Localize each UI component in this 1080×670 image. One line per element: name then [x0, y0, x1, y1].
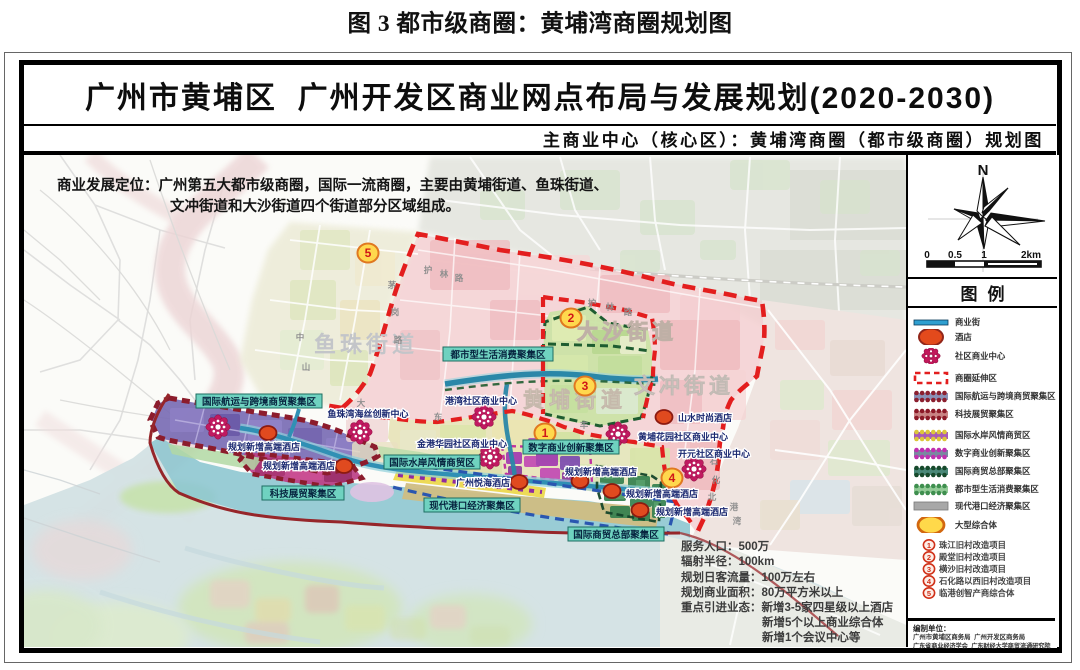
svg-text:规划新增高端酒店: 规划新增高端酒店: [228, 441, 300, 452]
svg-text:茅: 茅: [387, 280, 397, 290]
svg-text:0: 0: [924, 250, 930, 261]
svg-text:东: 东: [434, 412, 443, 422]
svg-text:北: 北: [708, 492, 717, 502]
svg-text:港: 港: [730, 502, 739, 512]
svg-text:新增1个会议中心等: 新增1个会议中心等: [762, 630, 861, 644]
svg-text:规划新增高端酒店: 规划新增高端酒店: [656, 506, 728, 517]
svg-text:岗: 岗: [391, 307, 400, 317]
svg-text:规划新增高端酒店: 规划新增高端酒店: [626, 488, 698, 499]
svg-text:1: 1: [981, 250, 987, 261]
svg-text:鱼珠湾海丝创新中心: 鱼珠湾海丝创新中心: [327, 408, 408, 419]
svg-text:现代港口经济聚集区: 现代港口经济聚集区: [429, 500, 515, 512]
svg-text:丰: 丰: [580, 420, 589, 430]
svg-text:国际航运与跨境商贸聚集区: 国际航运与跨境商贸聚集区: [202, 396, 317, 408]
svg-text:化: 化: [712, 475, 721, 485]
svg-text:开元社区商业中心: 开元社区商业中心: [678, 448, 750, 459]
svg-text:重点引进业态：新增3-5家四星级以上酒店: 重点引进业态：新增3-5家四星级以上酒店: [681, 600, 894, 614]
svg-text:辐射半径：100km: 辐射半径：100km: [681, 554, 774, 568]
svg-text:规划日客流量：100万左右: 规划日客流量：100万左右: [681, 570, 816, 584]
svg-text:广州悦海酒店: 广州悦海酒店: [456, 477, 510, 488]
svg-text:湾: 湾: [733, 516, 742, 526]
svg-text:服务人口：500万: 服务人口：500万: [681, 539, 770, 553]
svg-text:林: 林: [440, 269, 449, 279]
svg-text:文冲街道: 文冲街道: [634, 374, 734, 398]
svg-text:数字商业创新聚集区: 数字商业创新聚集区: [527, 442, 614, 454]
svg-text:N: N: [978, 162, 989, 179]
svg-text:黄埔花园社区商业中心: 黄埔花园社区商业中心: [638, 431, 728, 442]
svg-text:规划新增高端酒店: 规划新增高端酒店: [565, 466, 637, 477]
svg-text:中: 中: [296, 332, 305, 342]
svg-text:路: 路: [455, 273, 464, 283]
svg-text:路: 路: [624, 307, 633, 317]
svg-text:国际水岸风情商贸区: 国际水岸风情商贸区: [389, 457, 475, 469]
svg-text:科技展贸聚集区: 科技展贸聚集区: [270, 488, 337, 500]
svg-text:0.5: 0.5: [948, 250, 962, 261]
svg-text:黄埔街道: 黄埔街道: [523, 388, 627, 412]
svg-text:林: 林: [606, 302, 615, 312]
svg-text:2: 2: [927, 553, 931, 562]
svg-text:商业发展定位：广州第五大都市级商圈，国际一流商圈，主要由黄埔: 商业发展定位：广州第五大都市级商圈，国际一流商圈，主要由黄埔街道、鱼珠街道、: [57, 176, 608, 194]
svg-text:3: 3: [582, 379, 589, 393]
svg-text:金港华园社区商业中心: 金港华园社区商业中心: [416, 438, 507, 449]
svg-text:5: 5: [927, 589, 931, 598]
svg-text:山: 山: [302, 362, 311, 372]
svg-text:护: 护: [588, 298, 597, 308]
svg-text:规划商业面积：80万平方米以上: 规划商业面积：80万平方米以上: [681, 585, 844, 599]
svg-text:1: 1: [927, 541, 931, 550]
svg-text:新增5个以上商业综合体: 新增5个以上商业综合体: [762, 615, 884, 629]
svg-text:港湾社区商业中心: 港湾社区商业中心: [445, 395, 517, 406]
svg-text:护: 护: [424, 265, 433, 275]
svg-text:路: 路: [394, 335, 403, 345]
svg-text:鱼珠街道: 鱼珠街道: [314, 332, 418, 357]
svg-text:5: 5: [365, 246, 372, 260]
svg-text:大: 大: [357, 398, 366, 408]
svg-text:2: 2: [568, 311, 575, 325]
svg-text:都市型生活消费聚集区: 都市型生活消费聚集区: [449, 349, 546, 361]
svg-text:规划新增高端酒店: 规划新增高端酒店: [263, 460, 335, 471]
svg-text:文冲街道和大沙街道四个街道部分区域组成。: 文冲街道和大沙街道四个街道部分区域组成。: [170, 197, 460, 215]
svg-text:山水时尚酒店: 山水时尚酒店: [678, 412, 732, 423]
svg-text:1: 1: [542, 426, 549, 440]
svg-text:国际商贸总部聚集区: 国际商贸总部聚集区: [573, 529, 659, 541]
svg-text:2km: 2km: [1021, 250, 1041, 261]
svg-text:大沙街道: 大沙街道: [577, 320, 677, 344]
svg-text:4: 4: [669, 471, 676, 485]
svg-text:3: 3: [927, 565, 931, 574]
